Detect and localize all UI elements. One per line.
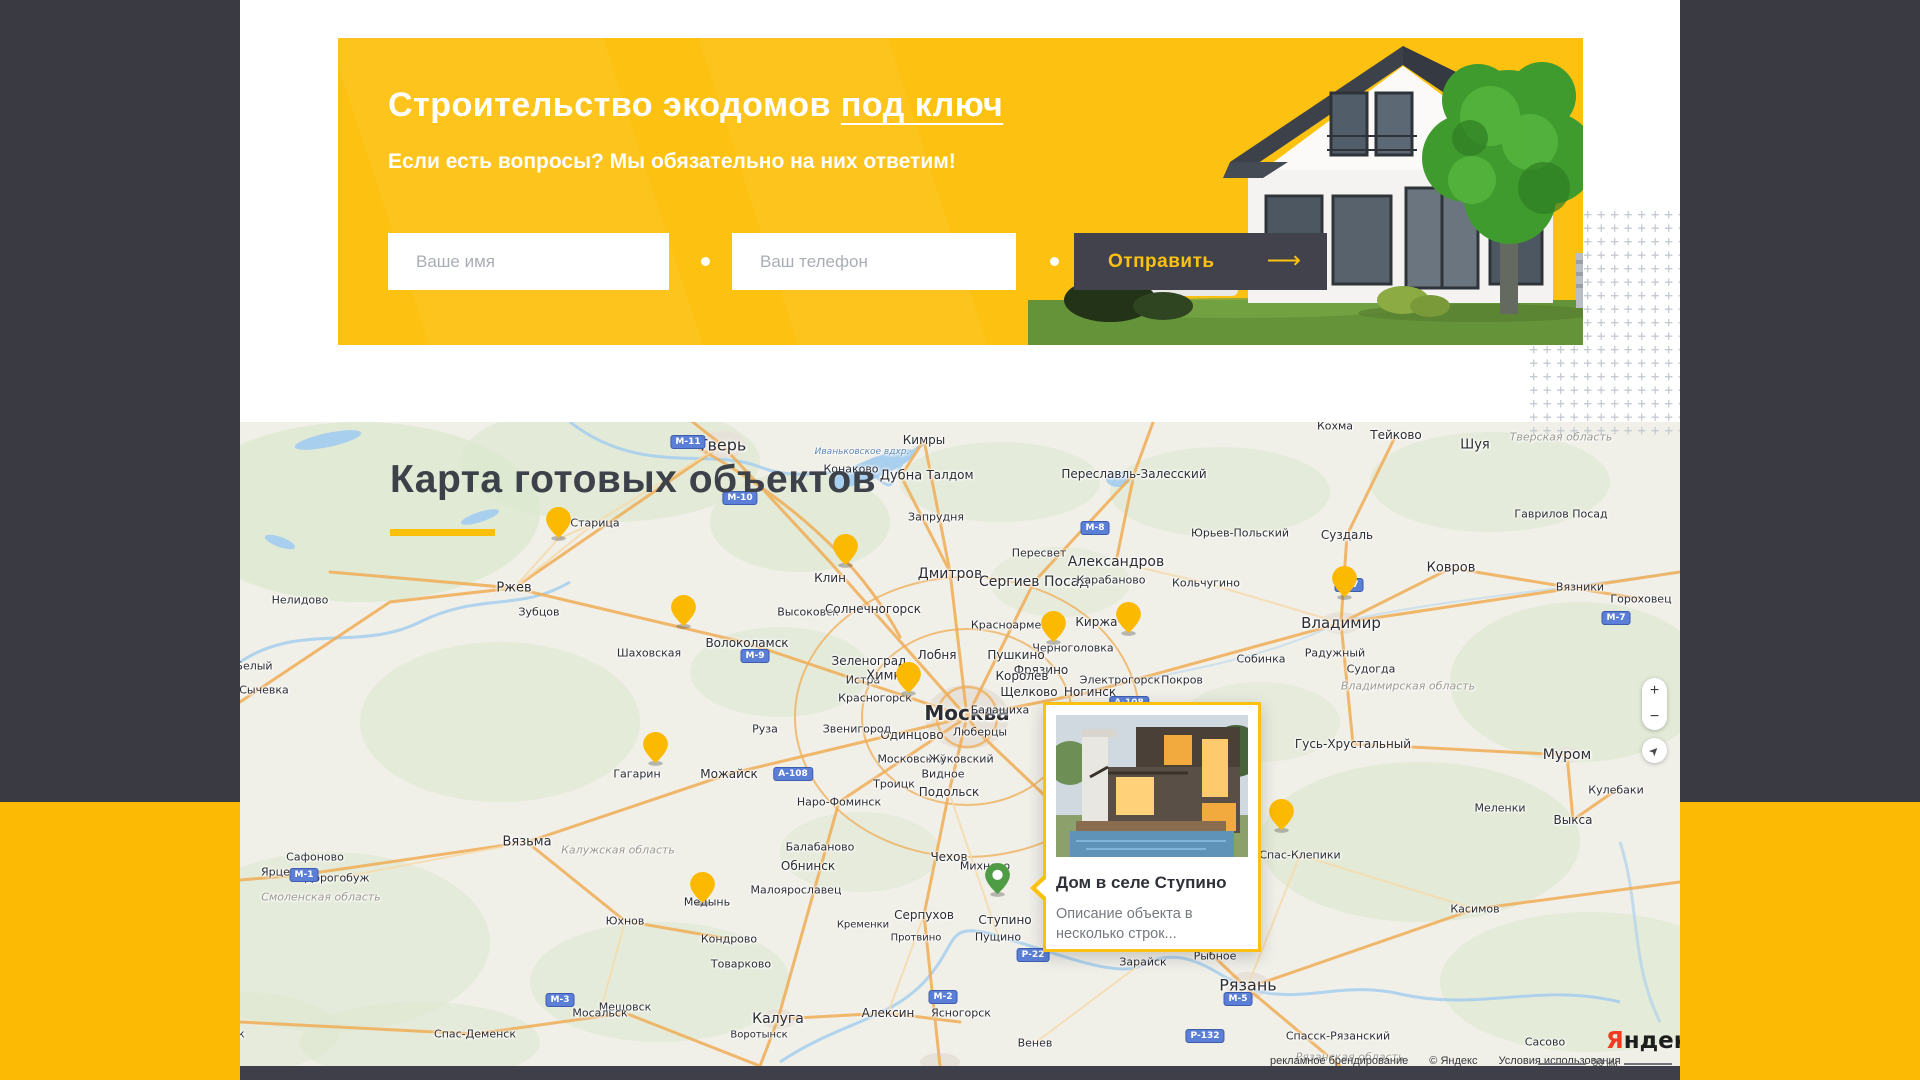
phone-input[interactable] (732, 233, 1016, 290)
popup-description: Описание объекта в несколько строк... (1056, 905, 1246, 944)
map-city-label: Белый (240, 660, 273, 673)
map-city-label: Юрьев-Польский (1191, 527, 1289, 540)
map-city-label: Дмитров (918, 566, 982, 582)
map-pin[interactable] (545, 507, 572, 541)
road-number-badge: М-8 (1081, 521, 1110, 535)
map-city-label: Ступино (978, 913, 1031, 927)
navigation-arrow-icon: ➤ (1646, 742, 1663, 759)
yandex-logo[interactable]: Яндекс (1606, 1028, 1680, 1054)
map-city-label: Гороховец (1610, 593, 1671, 606)
map-city-label: Касимов (1450, 903, 1499, 916)
map-city-label: Кременки (837, 920, 889, 931)
submit-label: Отправить (1108, 251, 1215, 273)
map-city-label: Лобня (918, 648, 957, 662)
yandex-logo-rest: ндекс (1624, 1028, 1680, 1054)
map-city-label: Кулебаки (1588, 784, 1643, 797)
map-city-label: Пересвет (1012, 547, 1067, 560)
map-pin[interactable] (689, 872, 716, 906)
map-city-label: Смоленская область (261, 891, 380, 904)
attribution-ad-link[interactable]: рекламное брендирование (1270, 1055, 1408, 1066)
map-city-label: Ясногорск (931, 1007, 991, 1020)
map-pin[interactable] (1040, 611, 1067, 645)
map-pin[interactable] (1331, 566, 1358, 600)
title-underline (390, 529, 495, 536)
map-city-label: Выкса (1554, 813, 1593, 827)
map-city-label: Кимры (903, 433, 945, 447)
map-scale: 30 км (1538, 1058, 1672, 1066)
map-city-label: Наро-Фоминск (797, 796, 881, 809)
road-number-badge: М-5 (1224, 992, 1253, 1006)
map-city-label: Калуга (752, 1011, 804, 1027)
geolocate-button[interactable]: ➤ (1642, 738, 1667, 763)
map-city-label: Гагарин (613, 768, 660, 781)
page: Строительство экодомов под ключ Если ест… (0, 0, 1920, 1080)
map-city-label: Переславль-Залесский (1061, 467, 1206, 481)
map-city-label: Кохма (1317, 422, 1353, 433)
attribution-copyright[interactable]: © Яндекс (1429, 1055, 1477, 1066)
yandex-logo-ya: Я (1606, 1028, 1624, 1054)
map-city-label: Меленки (1474, 802, 1525, 815)
map-city-label: Иваньковское вдхр. (815, 447, 910, 457)
map-city-label: Видное (922, 768, 965, 781)
map-city-label: Вязьма (502, 835, 551, 850)
map-city-label: Юхнов (606, 915, 645, 928)
map-city-label: Гаврилов Посад (1514, 508, 1607, 521)
map-city-label: Александров (1068, 554, 1164, 570)
map-city-label: Подольск (919, 785, 980, 799)
name-input[interactable] (388, 233, 669, 290)
banner-decor-shape (338, 38, 729, 345)
map-city-label: Дубна (880, 469, 922, 484)
map-city-label: Серпухов (894, 908, 954, 922)
map-city-label: Щелково (1000, 685, 1057, 699)
map-city-label: Обнинск (781, 859, 835, 873)
map-city-label: Калужская область (561, 844, 675, 857)
map-city-label: Ржев (496, 581, 531, 596)
map-city-label: Карабаново (1077, 574, 1146, 587)
scale-line (1624, 1063, 1672, 1065)
road-number-badge: М-1 (290, 868, 319, 882)
map-city-label: Шаховская (617, 647, 681, 660)
map-pin[interactable] (670, 595, 697, 629)
map-city-label: Судогда (1347, 663, 1396, 676)
next-section-edge (240, 1066, 1680, 1080)
map-city-label: Зарайск (1119, 956, 1166, 969)
map-city-label: Королев (996, 669, 1049, 683)
map-city-label: Малоярославец (751, 884, 842, 897)
map-city-label: Клин (814, 571, 846, 585)
map-city-label: Владимирская область (1341, 680, 1475, 693)
map-city-label: Зубцов (518, 606, 559, 619)
banner-title-underlined: под ключ (841, 86, 1003, 124)
map-city-label: Сафоново (286, 851, 344, 864)
banner-title-main: Строительство экодомов (388, 86, 831, 124)
road-number-badge: Р-132 (1185, 1029, 1224, 1043)
map-city-label: Воротынск (730, 1030, 787, 1041)
map-city-label: Кондрово (701, 933, 757, 946)
map-city-label: Вязники (1556, 581, 1604, 594)
yandex-map[interactable]: ТверьКимрыКонаковоИваньковское вдхр.Дубн… (240, 422, 1680, 1066)
map-city-label: Венев (1018, 1037, 1053, 1050)
map-city-label: Починок (240, 1028, 245, 1041)
road-number-badge: М-11 (670, 435, 705, 449)
map-city-label: Тейково (1370, 428, 1422, 442)
map-city-label: Покров (1161, 674, 1203, 687)
map-city-label: Сергиев Посад (979, 574, 1089, 590)
road-number-badge: М-2 (929, 990, 958, 1004)
map-city-label: Можайск (700, 767, 758, 781)
map-city-label: Спас-Клепики (1259, 849, 1340, 862)
map-city-label: Руза (752, 723, 778, 736)
map-city-label: Жуковский (928, 753, 993, 766)
map-city-label: Талдом (926, 468, 973, 482)
submit-button[interactable]: Отправить ⟶ (1074, 233, 1327, 290)
zoom-control: + − (1642, 678, 1667, 730)
scale-line (1538, 1063, 1586, 1065)
map-pin[interactable] (895, 662, 922, 696)
map-city-label: Звенигород (823, 723, 891, 736)
map-pin[interactable] (1268, 799, 1295, 833)
map-city-label: Товарково (711, 958, 771, 971)
map-city-label: Кольчугино (1172, 577, 1240, 590)
zoom-in-button[interactable]: + (1642, 678, 1667, 704)
banner-title: Строительство экодомов под ключ (388, 86, 1003, 125)
map-city-label: Сасово (1525, 1036, 1565, 1049)
left-yellow-bar (0, 802, 240, 1080)
map-city-label: Собинка (1237, 653, 1286, 666)
map-pin[interactable] (1115, 602, 1142, 636)
map-pin-selected[interactable] (984, 863, 1011, 897)
map-city-label: Ковров (1427, 561, 1476, 576)
map-city-label: Сычевка (240, 684, 289, 697)
house-illustration (818, 38, 1583, 345)
arrow-right-icon: ⟶ (1267, 249, 1301, 273)
popup-title: Дом в селе Ступино (1056, 873, 1226, 893)
object-photo (1056, 715, 1248, 857)
map-city-label: Запрудня (908, 511, 964, 524)
right-yellow-bar (1680, 802, 1920, 1080)
road-number-badge: А-108 (773, 767, 813, 781)
map-city-label: Люберцы (953, 726, 1007, 739)
popup-tail-inner (1036, 877, 1048, 899)
map-city-label: Радужный (1305, 647, 1365, 660)
map-city-label: Троицк (873, 778, 915, 791)
map-city-label: Балабаново (786, 841, 855, 854)
content-area: Строительство экодомов под ключ Если ест… (240, 0, 1680, 1080)
map-city-label: Пушкино (987, 648, 1044, 662)
hero-banner: Строительство экодомов под ключ Если ест… (338, 38, 1583, 345)
map-pin[interactable] (832, 534, 859, 568)
road-number-badge: М-3 (546, 993, 575, 1007)
map-pin[interactable] (642, 732, 669, 766)
map-city-label: Балашиха (971, 704, 1030, 717)
map-city-label: Протвино (891, 933, 942, 944)
map-city-label: Тверская область (1510, 431, 1613, 444)
map-city-label: Старица (570, 517, 619, 530)
map-city-label: Муром (1543, 747, 1591, 763)
scale-label: 30 км (1592, 1058, 1617, 1066)
map-city-label: Спасск-Рязанский (1286, 1030, 1390, 1043)
map-city-label: Солнечногорск (825, 602, 921, 616)
map-section-title: Карта готовых объектов (390, 458, 876, 502)
map-city-label: Волоколамск (705, 636, 788, 650)
map-city-label: Шуя (1460, 438, 1489, 453)
map-city-label: Алексин (862, 1006, 915, 1020)
road-number-badge: М-7 (1602, 611, 1631, 625)
map-city-label: Суздаль (1321, 528, 1373, 542)
map-city-label: Ногинск (1064, 685, 1116, 699)
map-city-label: Пущино (975, 931, 1021, 944)
object-popup: Дом в селе Ступино Описание объекта в не… (1043, 702, 1261, 952)
map-city-label: Владимир (1301, 614, 1381, 632)
map-city-label: Нелидово (272, 594, 329, 607)
map-city-label: Гусь-Хрустальный (1295, 737, 1411, 751)
dot-separator (1050, 257, 1059, 266)
map-city-label: Мосальск (572, 1007, 627, 1020)
dot-separator (701, 257, 710, 266)
banner-subtitle: Если есть вопросы? Мы обязательно на них… (388, 150, 956, 174)
road-number-badge: М-9 (741, 649, 770, 663)
map-city-label: Спас-Деменск (434, 1028, 516, 1041)
zoom-out-button[interactable]: − (1642, 704, 1667, 730)
lead-form: Отправить ⟶ (388, 233, 1548, 290)
